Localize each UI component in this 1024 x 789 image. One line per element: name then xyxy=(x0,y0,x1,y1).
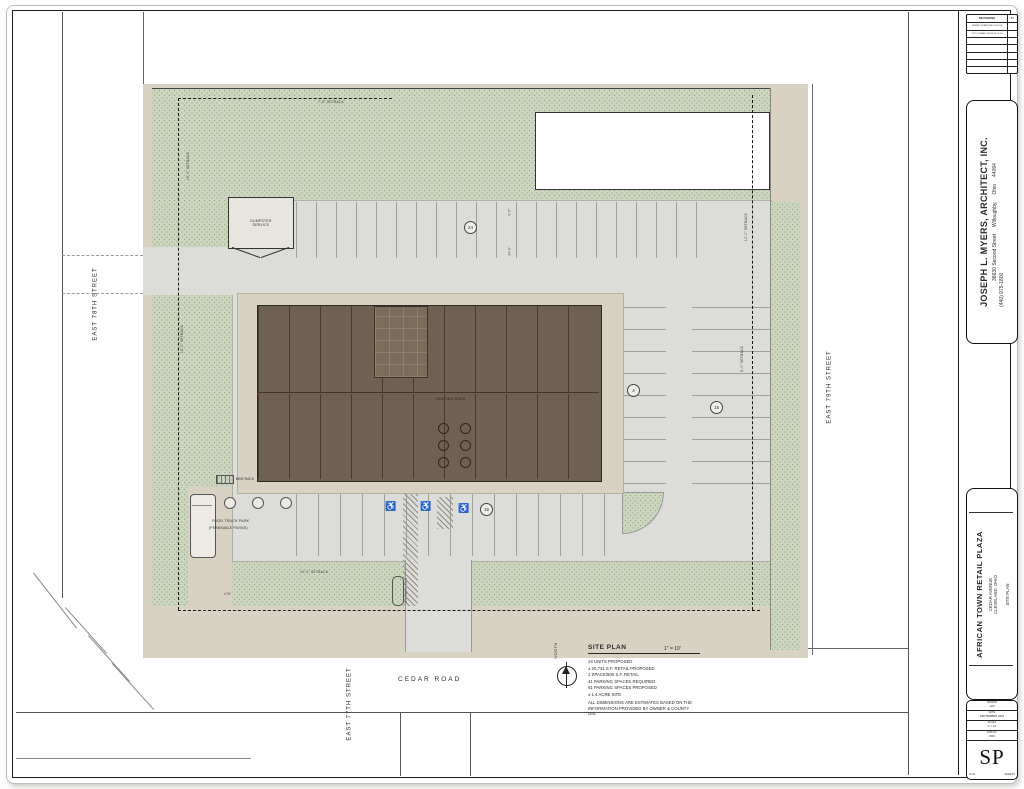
property-line-south xyxy=(178,610,760,611)
landscape-left-lower xyxy=(152,487,188,606)
access-aisle-hatch xyxy=(437,497,453,529)
dumpster-label-2: SERVICE xyxy=(253,223,270,227)
project-box-rule-bottom xyxy=(969,665,1013,666)
revisions-by-header: BY xyxy=(1007,15,1017,22)
parking-bay-inner xyxy=(618,302,666,484)
e77-east-curb xyxy=(470,712,471,776)
setback-label-top: 7'-0" SETBACK xyxy=(318,100,344,104)
note-line: 41 PARKING SPACES REQUIRED xyxy=(588,679,655,684)
right-street-east-curb xyxy=(908,12,909,775)
street-label-right: EAST 79TH STREET xyxy=(818,328,842,446)
accessible-parking-icon: ♿ xyxy=(420,501,431,512)
sheet-footer-left: 01 01 xyxy=(969,773,976,779)
sheet-number: SP xyxy=(967,741,1017,773)
notes-title: SITE PLAN xyxy=(588,644,626,651)
seating-table xyxy=(438,440,449,451)
sheet-row-value: SEPTEMBER 2023 xyxy=(967,714,1017,718)
project-box-rule-top xyxy=(969,512,1013,513)
sheet-row-value: JLM xyxy=(967,704,1017,708)
parking-count-south: 19 xyxy=(480,503,493,516)
seating-table xyxy=(438,457,449,468)
left-street-west-curb xyxy=(62,12,63,598)
accessible-parking-icon: ♿ xyxy=(458,503,469,514)
revisions-header: REVISIONS xyxy=(967,15,1007,22)
dumpster-enclosure: DUMPSTER SERVICE xyxy=(228,197,294,249)
seating-table xyxy=(460,440,471,451)
revision-row xyxy=(967,67,1007,73)
dim-stall-depth: 9'-0" xyxy=(505,202,515,222)
architect-street: 38630 Second Street xyxy=(992,234,998,281)
landscape-right xyxy=(770,202,800,650)
street-label-left: EAST 78TH STREET xyxy=(84,248,108,360)
food-table xyxy=(252,497,264,509)
project-name: AFRICAN TOWN RETAIL PLAZA xyxy=(975,531,984,658)
food-table xyxy=(224,497,236,509)
north-label: NORTH xyxy=(548,636,562,664)
parking-count-top: 24 xyxy=(464,221,477,234)
note-line: 24 UNITS PROPOSED xyxy=(588,659,632,664)
drive-left xyxy=(143,247,233,295)
bike-rack-icon xyxy=(216,475,234,484)
landscape-left-upper xyxy=(152,202,232,247)
right-street-west-curb xyxy=(812,84,813,655)
accessible-parking-icon: ♿ xyxy=(385,501,396,512)
revisions-table: REVISIONS BY PERMIT SUBMITTAL 01.05.24 C… xyxy=(966,14,1018,74)
building-units-bottom xyxy=(258,394,599,479)
setback-label-left-lower: 15'-0" SETBACK xyxy=(176,316,188,362)
parking-count-inner: 4 xyxy=(627,384,640,397)
dim-aisle-width: 24'-0" xyxy=(505,238,515,264)
cedar-south-curb xyxy=(16,712,908,713)
building-units-top xyxy=(258,306,599,392)
bike-rack-label: BIKE RACK xyxy=(236,477,254,481)
adjacent-building xyxy=(535,112,770,190)
revision-row xyxy=(967,38,1007,44)
building-core xyxy=(374,306,428,378)
street-label-cedar: CEDAR ROAD xyxy=(398,676,461,683)
setback-label-bottom: 12'-0" SETBACK xyxy=(300,570,328,574)
seating-table xyxy=(460,423,471,434)
property-line-east xyxy=(752,95,753,610)
permeable-paving-label: (PERMEABLE PAVING) xyxy=(209,526,248,530)
revision-row: PERMIT SUBMITTAL 01.05.24 xyxy=(967,23,1007,30)
food-truck-windshield xyxy=(192,505,212,506)
street-label-south: EAST 77TH STREET xyxy=(338,650,362,758)
notes-scale: 1" = 10' xyxy=(664,646,681,652)
setback-label-right-mid: 8'-0" SETBACK xyxy=(736,336,748,382)
architect-titleblock: JOSEPH L. MYERS, ARCHITECT, INC. 38630 S… xyxy=(966,100,1018,344)
seating-area-label: SEATING AREA xyxy=(436,397,466,401)
building-corridor-line xyxy=(258,392,599,393)
food-truck-park-label: FOOD TRUCK PARK xyxy=(212,519,249,523)
property-line-north xyxy=(178,98,392,99)
project-address-2: CLEVELAND, OHIO xyxy=(993,531,998,658)
revision-row: CITY CORRECTIONS 02.10.24 xyxy=(967,31,1007,38)
notes-disclaimer: ALL DIMENSIONS ARE ESTIMATES BASED ON TH… xyxy=(588,700,696,717)
seating-table xyxy=(460,457,471,468)
site-north-boundary xyxy=(152,88,770,89)
setback-label-right-upper: 12'-0" SETBACK xyxy=(740,202,752,252)
project-address-1: CEDAR AVENUE xyxy=(988,531,993,658)
landscape-bottom xyxy=(232,562,770,606)
landscape-left-mid xyxy=(152,295,232,487)
monument-sign-label: MONUMENT SIGN xyxy=(402,576,410,604)
note-line: ± 20,731 S.F. RETAIL PROPOSED xyxy=(588,666,655,671)
parking-bay-east xyxy=(692,302,770,484)
north-arrow-head xyxy=(562,666,570,674)
architect-state: Ohio xyxy=(992,184,998,195)
revision-row xyxy=(967,45,1007,51)
parking-count-east: 15 xyxy=(710,401,723,414)
south-sidewalk-line xyxy=(16,758,251,759)
sheet-number-block: DRAWN JLM DATE SEPTEMBER 2023 SCALE 1" =… xyxy=(966,700,1018,780)
architect-phone: (440) 975-1800 xyxy=(999,137,1005,307)
sheet-footer-right: SHEETS xyxy=(1005,773,1015,779)
note-line: 61 PARKING SPACES PROPOSED xyxy=(588,685,657,690)
drawing-sheet: EAST 78TH STREET EAST 79TH STREET EAST 7… xyxy=(0,0,1024,789)
setback-label-left-upper: 15'-0" SETBACK xyxy=(182,143,194,189)
sheet-row-value: 2310 xyxy=(967,734,1017,738)
seating-table xyxy=(438,423,449,434)
project-sheet-title: SITE PLAN xyxy=(1005,531,1010,658)
note-line: 1 SPACE/500 S.F. RETAIL xyxy=(588,672,639,677)
notes-title-rule xyxy=(588,653,700,654)
titleblock-separator xyxy=(958,11,959,775)
site-east-boundary xyxy=(770,88,771,650)
food-table xyxy=(280,497,292,509)
project-titleblock: AFRICAN TOWN RETAIL PLAZA CEDAR AVENUE C… xyxy=(966,488,1018,700)
parking-row-top xyxy=(296,202,698,258)
revision-row xyxy=(967,60,1007,66)
sheet-row-value: 1" = 10' xyxy=(967,724,1017,728)
architect-city: Willoughby, xyxy=(992,202,998,227)
architect-zip: 44094 xyxy=(992,163,998,177)
dim-frontage: ±78' xyxy=(224,592,231,596)
e77-west-curb xyxy=(400,712,401,776)
revision-row xyxy=(967,53,1007,59)
architect-name: JOSEPH L. MYERS, ARCHITECT, INC. xyxy=(979,137,989,307)
note-line: ± 1.4 ACRE SITE xyxy=(588,692,621,697)
